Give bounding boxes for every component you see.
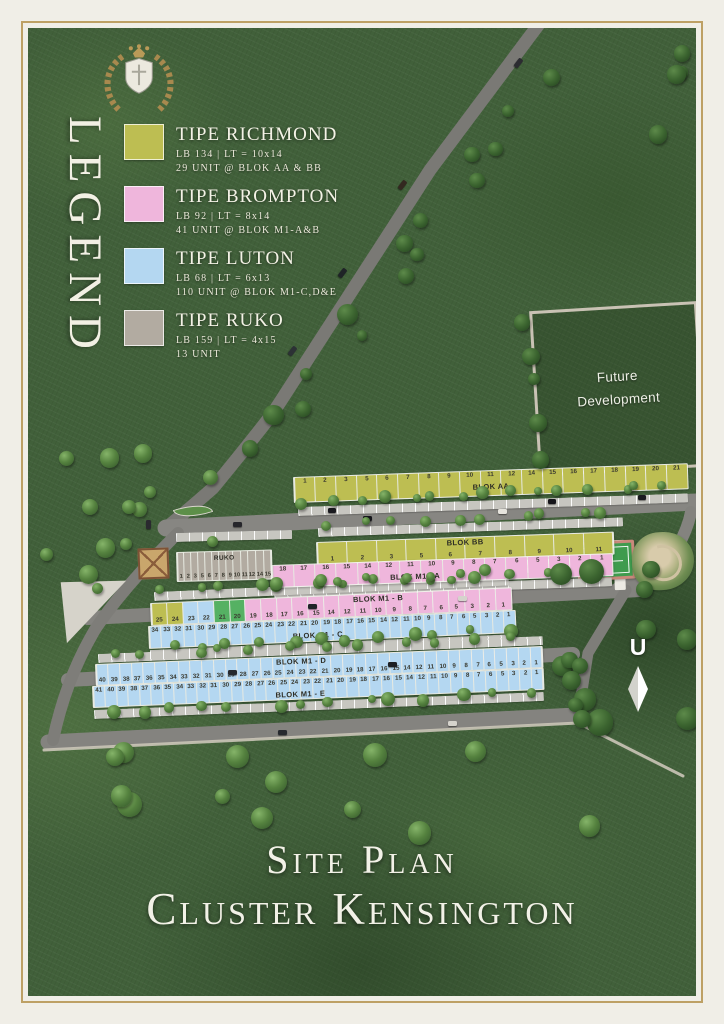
legend-swatch-luton: [124, 248, 164, 284]
tree: [417, 694, 429, 706]
tree: [396, 235, 413, 252]
tree: [344, 801, 361, 818]
tree: [579, 815, 601, 837]
tree: [100, 448, 120, 468]
tree: [134, 444, 153, 463]
tree: [534, 487, 542, 495]
tree: [529, 414, 547, 432]
tree: [242, 440, 259, 457]
tree: [479, 564, 491, 576]
plan-title-line2: Cluster Kensington: [28, 883, 696, 935]
tree: [265, 771, 287, 793]
tree: [386, 516, 395, 525]
tree: [459, 492, 468, 501]
tree: [333, 577, 342, 586]
tree: [642, 561, 659, 578]
tree: [254, 637, 264, 647]
tree: [362, 517, 371, 526]
tree: [582, 484, 593, 495]
tree: [413, 213, 428, 228]
tree: [296, 700, 305, 709]
north-label: U: [620, 634, 656, 661]
legend-swatch-ruko: [124, 310, 164, 346]
tree: [275, 700, 288, 713]
legend-item-detail: LB 92 | LT = 8x14: [176, 211, 339, 222]
legend-item-detail: LB 68 | LT = 6x13: [176, 273, 337, 284]
legend-item-ruko: TIPE RUKO LB 159 | LT = 4x15 13 UNIT: [124, 310, 284, 360]
tree: [243, 645, 253, 655]
tree: [207, 536, 218, 547]
tree: [170, 640, 180, 650]
tree: [502, 105, 514, 117]
tree: [587, 709, 614, 736]
north-indicator: U: [620, 634, 656, 712]
tree: [456, 569, 464, 577]
tree: [111, 785, 133, 807]
tree: [164, 702, 175, 713]
tree: [579, 559, 604, 584]
tree: [215, 789, 231, 805]
tree: [59, 451, 74, 466]
site-plan-map: Future Development 123567891011121415161…: [28, 28, 696, 996]
tree: [379, 490, 392, 503]
tree: [514, 314, 531, 331]
tree: [534, 508, 545, 519]
tree: [426, 572, 435, 581]
tree: [256, 578, 269, 591]
tree: [667, 65, 685, 83]
tree: [213, 644, 221, 652]
legend-item-detail: 41 UNIT @ BLOK M1-A&B: [176, 225, 339, 236]
tree: [213, 581, 223, 591]
tree: [92, 583, 103, 594]
legend-swatch-brompton: [124, 186, 164, 222]
tree: [339, 635, 351, 647]
tree: [430, 638, 440, 648]
tree: [263, 405, 284, 426]
tree: [372, 631, 384, 643]
crest-logo: [92, 44, 186, 120]
tree: [527, 688, 536, 697]
tree: [402, 637, 412, 647]
tree: [315, 574, 327, 586]
legend-item-richmond: TIPE RICHMOND LB 134 | LT = 10x14 29 UNI…: [124, 124, 337, 174]
legend-item-detail: 110 UNIT @ BLOK M1-C,D&E: [176, 287, 337, 298]
tree: [657, 481, 666, 490]
tree: [447, 576, 456, 585]
tree: [464, 147, 479, 162]
tree: [226, 745, 249, 768]
tree: [676, 707, 696, 731]
legend-swatch-richmond: [124, 124, 164, 160]
tree: [96, 538, 115, 557]
tree: [636, 581, 653, 598]
tree: [455, 515, 466, 526]
tree: [488, 142, 503, 157]
tree: [111, 649, 120, 658]
tree: [457, 688, 471, 702]
tree: [506, 632, 515, 641]
legend-title: LEGEND: [58, 116, 112, 358]
tree: [581, 508, 590, 517]
legend-item-name: TIPE BROMPTON: [176, 186, 339, 208]
tree: [251, 807, 274, 830]
tree: [649, 125, 668, 144]
tree: [363, 743, 387, 767]
tree: [40, 548, 53, 561]
tree: [524, 511, 534, 521]
tree: [358, 496, 367, 505]
tree: [505, 485, 516, 496]
tree: [196, 701, 207, 712]
tree: [352, 639, 364, 651]
tree: [144, 486, 157, 499]
tree: [674, 45, 690, 61]
tree: [562, 671, 581, 690]
legend-item-luton: TIPE LUTON LB 68 | LT = 6x13 110 UNIT @ …: [124, 248, 337, 298]
tree: [120, 538, 133, 551]
tree: [476, 486, 489, 499]
plan-title: Site Plan Cluster Kensington: [28, 836, 696, 935]
tree: [321, 521, 331, 531]
tree: [196, 648, 207, 659]
legend-item-detail: LB 134 | LT = 10x14: [176, 149, 337, 160]
legend-item-name: TIPE LUTON: [176, 248, 337, 270]
legend: LEGEND TIPE RICHMOND LB 134 | LT = 10x14…: [28, 28, 368, 388]
tree: [504, 569, 514, 579]
tree: [106, 748, 124, 766]
tree: [528, 373, 540, 385]
tree: [155, 585, 164, 594]
tree: [368, 695, 376, 703]
tree: [270, 577, 283, 590]
tree: [488, 688, 496, 696]
tree: [469, 633, 480, 644]
tree: [550, 563, 572, 585]
legend-item-detail: 13 UNIT: [176, 349, 284, 360]
legend-item-name: TIPE RUKO: [176, 310, 284, 332]
tree: [295, 498, 307, 510]
tree: [465, 741, 486, 762]
tree: [410, 248, 424, 262]
tree: [79, 565, 98, 584]
legend-item-brompton: TIPE BROMPTON LB 92 | LT = 8x14 41 UNIT …: [124, 186, 339, 236]
tree: [425, 491, 435, 501]
tree: [469, 173, 484, 188]
tree: [285, 641, 296, 652]
north-arrow-icon: [628, 666, 648, 712]
tree: [139, 706, 152, 719]
tree: [402, 573, 412, 583]
legend-item-detail: LB 159 | LT = 4x15: [176, 335, 284, 346]
tree: [522, 348, 540, 366]
tree: [543, 69, 560, 86]
tree: [413, 494, 422, 503]
tree: [532, 451, 549, 468]
legend-item-detail: 29 UNIT @ BLOK AA & BB: [176, 163, 337, 174]
tree: [629, 481, 638, 490]
tree: [107, 705, 121, 719]
tree: [198, 583, 207, 592]
tree: [82, 499, 98, 515]
tree: [203, 470, 218, 485]
tree: [322, 697, 332, 707]
tree: [474, 514, 485, 525]
tree: [551, 485, 562, 496]
legend-item-name: TIPE RICHMOND: [176, 124, 337, 146]
tree: [420, 516, 431, 527]
tree: [328, 495, 339, 506]
tree: [221, 702, 231, 712]
tree: [135, 650, 145, 660]
plan-title-line1: Site Plan: [28, 836, 696, 883]
tree: [381, 692, 395, 706]
tree: [677, 629, 696, 650]
tree: [295, 401, 311, 417]
tree: [594, 507, 606, 519]
tree: [398, 268, 415, 285]
tree: [322, 642, 332, 652]
